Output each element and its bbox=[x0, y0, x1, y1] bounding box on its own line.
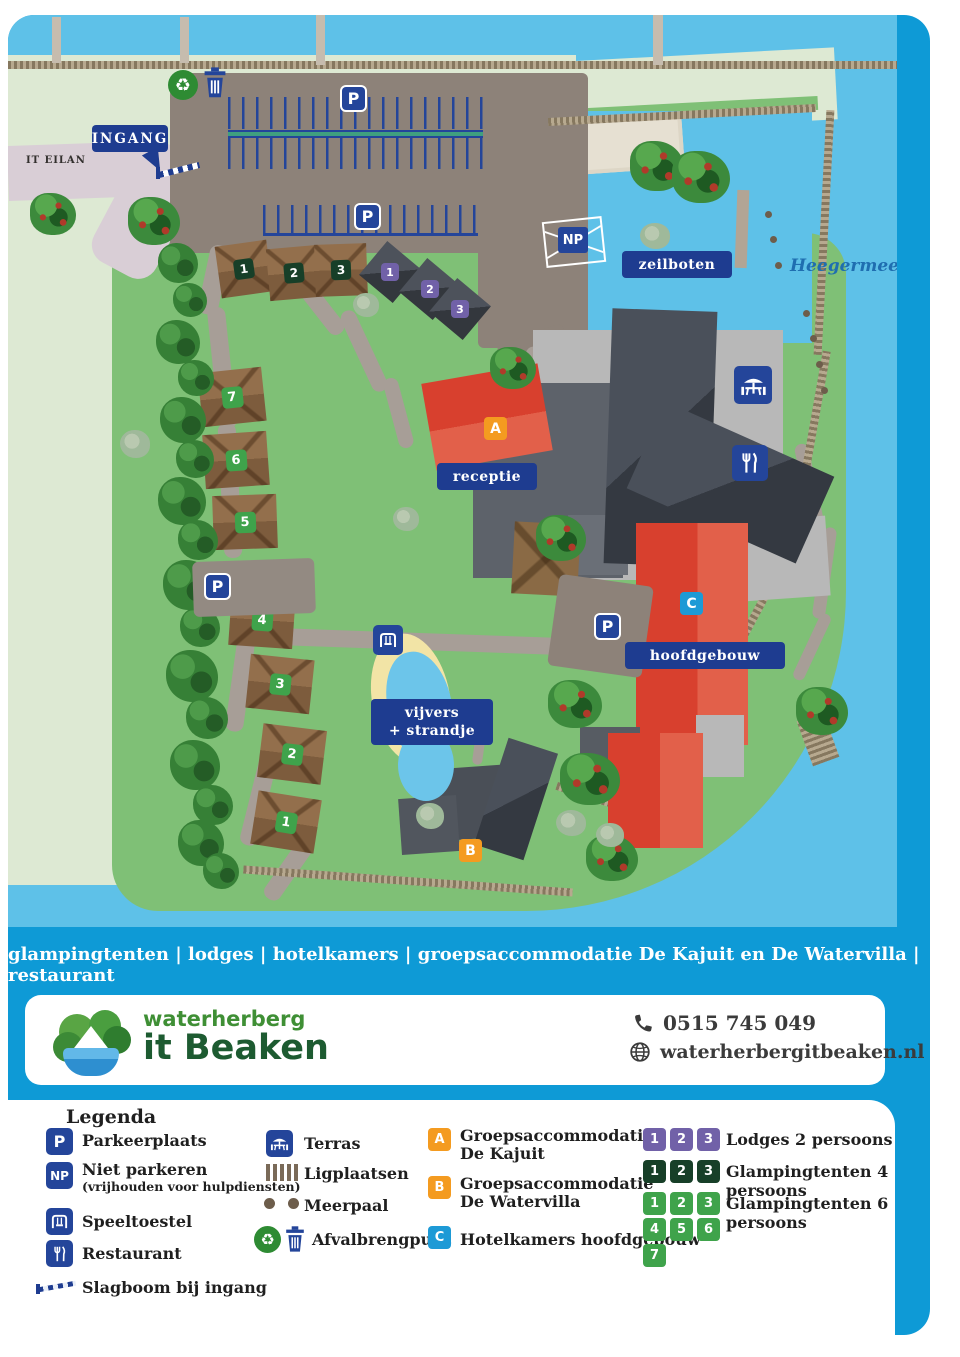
phone-number: 0515 745 049 bbox=[663, 1011, 816, 1035]
bush bbox=[536, 515, 586, 561]
glamping6-tent: 3 bbox=[245, 654, 314, 714]
globe-icon bbox=[629, 1041, 651, 1063]
parking-sign: P bbox=[206, 575, 229, 598]
logo-icon bbox=[53, 1000, 133, 1080]
legend-b-line1: Groepsaccommodatie bbox=[460, 1174, 653, 1193]
lodge-number: 3 bbox=[697, 1128, 720, 1151]
glamping4-number: 2 bbox=[283, 262, 305, 284]
parking-sign: P bbox=[596, 615, 619, 638]
lodge-number: 1 bbox=[643, 1128, 666, 1151]
restaurant-icon bbox=[732, 445, 768, 481]
tree bbox=[158, 243, 198, 283]
playground-icon bbox=[46, 1208, 73, 1235]
legend-terras: Terras bbox=[304, 1134, 360, 1153]
legend-panel: Legenda P Parkeerplaats NP Niet parkeren… bbox=[8, 1100, 895, 1357]
bush bbox=[556, 810, 586, 836]
bush bbox=[128, 197, 180, 245]
tree bbox=[166, 650, 218, 702]
no-parking-icon: NP bbox=[46, 1162, 73, 1189]
vijvers-line1: vijvers bbox=[405, 704, 459, 722]
glamping6-tent: 2 bbox=[257, 723, 327, 784]
marker-c: C bbox=[428, 1226, 451, 1249]
glamping6-number: 2 bbox=[280, 742, 303, 765]
legend-a-line1: Groepsaccommodatie bbox=[460, 1126, 653, 1145]
trash-bin-icon bbox=[202, 67, 228, 99]
glamping6-number: 4 bbox=[643, 1218, 666, 1241]
marker-a: A bbox=[484, 417, 507, 440]
legend-meerpaal: Meerpaal bbox=[304, 1196, 389, 1215]
parking-sign: P bbox=[356, 205, 379, 228]
glamping4-tent: 1 bbox=[215, 240, 274, 299]
legend-lodges-label: Lodges 2 persoons bbox=[726, 1130, 893, 1149]
tree bbox=[170, 740, 220, 790]
restaurant-icon bbox=[46, 1240, 73, 1267]
receptie-label: receptie bbox=[437, 463, 537, 490]
glamping6-number: 5 bbox=[234, 511, 256, 533]
glamping4-number: 1 bbox=[643, 1160, 666, 1183]
vijvers-label: vijvers + strandje bbox=[371, 699, 493, 745]
logo-wave bbox=[63, 1048, 119, 1076]
zeilboten-label: zeilboten bbox=[622, 251, 732, 278]
pier bbox=[52, 17, 61, 63]
legend-ligplaatsen: Ligplaatsen bbox=[304, 1164, 409, 1183]
lodge-number: 2 bbox=[670, 1128, 693, 1151]
tagline-bar: glampingtenten | lodges | hotelkamers | … bbox=[8, 930, 930, 1000]
mooring-post bbox=[765, 211, 772, 218]
parking-lot-harbour bbox=[478, 73, 588, 348]
website-row: waterherbergitbeaken.nl bbox=[629, 1041, 925, 1063]
legend-niet-parkeren: Niet parkeren bbox=[82, 1160, 207, 1179]
legend-glamping6-label: Glampingtenten 6 persoons bbox=[726, 1194, 895, 1232]
mooring-post bbox=[775, 262, 782, 269]
lodge-number: 1 bbox=[381, 263, 399, 281]
tree bbox=[158, 477, 206, 525]
terrace-icon bbox=[734, 366, 772, 404]
glamping4-number: 1 bbox=[233, 258, 256, 281]
bush bbox=[640, 223, 670, 249]
heegermeer-label: Heegermeer bbox=[790, 256, 897, 276]
glamping6-number: 5 bbox=[670, 1218, 693, 1241]
phone-icon bbox=[633, 1013, 654, 1034]
parking-row-line bbox=[263, 233, 478, 236]
glamping6-tent: 1 bbox=[250, 790, 322, 853]
legend-speeltoestel: Speeltoestel bbox=[82, 1212, 192, 1231]
terrace-icon bbox=[266, 1130, 293, 1157]
bush bbox=[353, 293, 379, 317]
glamping6-number: 7 bbox=[643, 1244, 666, 1267]
legend-b-line2: De Watervilla bbox=[460, 1192, 580, 1211]
parking-sign: P bbox=[342, 87, 365, 110]
flyer-page: { "tagline": "glampingtenten | lodges | … bbox=[0, 0, 960, 1357]
glamping6-number: 7 bbox=[220, 385, 243, 408]
bush bbox=[30, 193, 76, 235]
glamping4-number: 3 bbox=[331, 260, 352, 281]
mooring-post bbox=[821, 387, 828, 394]
boardwalk bbox=[8, 61, 897, 69]
legend-niet-parkeren-sub: (vrijhouden voor hulpdiensten) bbox=[82, 1179, 301, 1194]
bush bbox=[796, 687, 848, 735]
mooring-post bbox=[803, 310, 810, 317]
tree bbox=[156, 320, 200, 364]
vijvers-line2: + strandje bbox=[389, 722, 475, 740]
mooring-icon bbox=[264, 1198, 275, 1209]
recycle-icon: ♻ bbox=[168, 70, 198, 100]
legend-a-line2: De Kajuit bbox=[460, 1144, 545, 1163]
recycle-icon: ♻ bbox=[254, 1226, 281, 1253]
site-map: 1 2 3 1 2 3 7 6 5 4 3 2 1 bbox=[8, 15, 897, 927]
glamping6-number: 2 bbox=[670, 1192, 693, 1215]
tree bbox=[173, 283, 207, 317]
glamping6-number: 6 bbox=[697, 1218, 720, 1241]
mooring-icon bbox=[288, 1198, 299, 1209]
parking-icon: P bbox=[46, 1128, 73, 1155]
tree bbox=[203, 853, 239, 889]
tagline-text: glampingtenten | lodges | hotelkamers | … bbox=[8, 944, 930, 986]
legend-slagboom: Slagboom bij ingang bbox=[82, 1278, 267, 1297]
mooring-post bbox=[770, 236, 777, 243]
glamping6-number: 6 bbox=[225, 449, 247, 471]
no-parking-sign: NP bbox=[558, 227, 588, 253]
bush bbox=[120, 430, 150, 458]
tree bbox=[193, 785, 233, 825]
glamping4-tent: 3 bbox=[314, 243, 368, 297]
pier bbox=[180, 17, 189, 63]
glamping4-number: 2 bbox=[670, 1160, 693, 1183]
glamping6-number: 3 bbox=[268, 672, 291, 695]
hoofdgebouw-label: hoofdgebouw bbox=[625, 642, 785, 669]
legend-parkeerplaats: Parkeerplaats bbox=[82, 1131, 207, 1150]
parking-spaces bbox=[228, 137, 483, 169]
tree bbox=[160, 397, 206, 443]
marker-a: A bbox=[428, 1128, 451, 1151]
phone-row: 0515 745 049 bbox=[633, 1011, 816, 1035]
trash-bin-icon bbox=[284, 1226, 306, 1253]
bush bbox=[560, 753, 620, 805]
bush bbox=[393, 507, 419, 531]
bush bbox=[596, 823, 624, 847]
bush bbox=[672, 151, 730, 203]
it-eilan-label: IT EILAN bbox=[26, 155, 86, 166]
tree bbox=[178, 520, 218, 560]
tree bbox=[178, 360, 214, 396]
lodge-number: 3 bbox=[451, 300, 469, 318]
glamping6-number: 1 bbox=[643, 1192, 666, 1215]
barrier-icon bbox=[38, 1281, 76, 1293]
glamping6-number: 1 bbox=[274, 810, 298, 834]
glamping6-tent: 5 bbox=[212, 494, 278, 550]
legend-title: Legenda bbox=[66, 1106, 156, 1128]
glamping6-number: 3 bbox=[697, 1192, 720, 1215]
marker-c: C bbox=[680, 592, 703, 615]
berths-icon bbox=[266, 1164, 299, 1181]
legend-restaurant: Restaurant bbox=[82, 1244, 182, 1263]
website-url: waterherbergitbeaken.nl bbox=[660, 1041, 925, 1063]
bush bbox=[416, 803, 444, 829]
marker-b: B bbox=[459, 839, 482, 862]
glamping4-number: 3 bbox=[697, 1160, 720, 1183]
pier bbox=[316, 15, 325, 65]
mooring-post bbox=[810, 335, 817, 342]
logo-text-line2: it Beaken bbox=[143, 1028, 329, 1068]
bush bbox=[490, 347, 536, 389]
barrier-icon-post bbox=[36, 1284, 40, 1294]
tree bbox=[186, 697, 228, 739]
apron bbox=[696, 715, 744, 777]
tree bbox=[176, 440, 214, 478]
mooring-post bbox=[816, 361, 823, 368]
playground-icon bbox=[373, 625, 403, 655]
hoofdgebouw-building bbox=[636, 523, 748, 745]
bush bbox=[548, 680, 602, 728]
marker-b: B bbox=[428, 1176, 451, 1199]
pier bbox=[653, 15, 663, 65]
contact-card: waterherberg it Beaken 0515 745 049 wate… bbox=[25, 995, 885, 1085]
lodge-number: 2 bbox=[421, 280, 439, 298]
